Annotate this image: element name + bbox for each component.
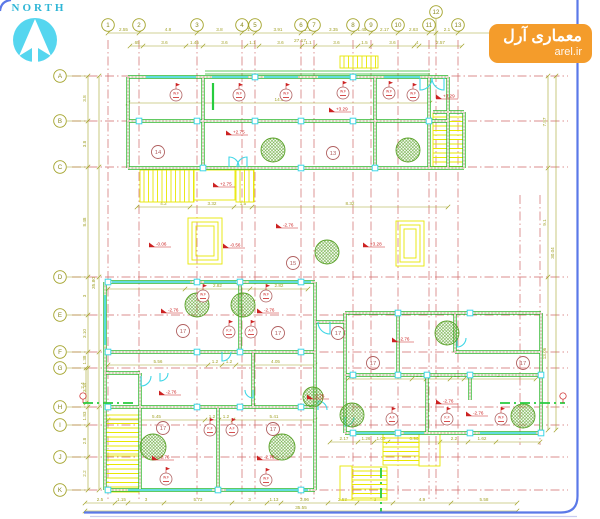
svg-text:7: 7 — [312, 22, 316, 29]
svg-text:2.8: 2.8 — [82, 437, 87, 444]
svg-text:3.96: 3.96 — [300, 497, 309, 502]
svg-text:3: 3 — [248, 497, 251, 502]
svg-text:35.80: 35.80 — [91, 277, 97, 289]
svg-text:1.26: 1.26 — [362, 436, 371, 441]
canopy-lines — [205, 71, 430, 74]
hatch-circle — [435, 321, 459, 345]
svg-text:W.F: W.F — [340, 90, 346, 94]
svg-text:-2.76: -2.76 — [168, 308, 179, 313]
svg-text:1.5: 1.5 — [361, 40, 368, 45]
column-marker — [215, 487, 221, 493]
column-marker — [350, 372, 356, 378]
svg-text:W.F: W.F — [163, 476, 169, 480]
svg-text:5: 5 — [253, 22, 257, 29]
column-marker — [350, 118, 356, 124]
column-marker — [298, 349, 304, 355]
column-marker — [105, 404, 111, 410]
walls — [105, 77, 541, 490]
column-marker — [200, 165, 206, 171]
svg-text:A.F: A.F — [229, 427, 234, 431]
svg-text:15: 15 — [290, 261, 296, 267]
svg-text:4.9: 4.9 — [419, 497, 426, 502]
svg-text:3.35: 3.35 — [329, 27, 338, 32]
svg-text:3.10: 3.10 — [82, 329, 87, 338]
svg-text:A.F: A.F — [248, 329, 253, 333]
svg-text:17: 17 — [335, 331, 341, 337]
svg-text:5.45: 5.45 — [152, 414, 161, 419]
column-marker — [538, 372, 544, 378]
svg-text:17: 17 — [180, 329, 186, 335]
svg-text:4: 4 — [240, 22, 244, 29]
column-marker — [372, 165, 378, 171]
door-swing — [432, 78, 444, 90]
svg-text:+2.75: +2.75 — [233, 130, 245, 135]
svg-text:7.87: 7.87 — [542, 117, 547, 126]
column-marker — [350, 74, 356, 80]
svg-text:17: 17 — [520, 361, 526, 367]
svg-text:E: E — [58, 312, 62, 319]
svg-text:2.63: 2.63 — [409, 27, 418, 32]
svg-text:14: 14 — [155, 150, 162, 156]
svg-text:27.17: 27.17 — [294, 38, 306, 44]
svg-text:.4: .4 — [415, 40, 419, 45]
column-marker — [105, 349, 111, 355]
svg-text:3.6: 3.6 — [161, 40, 168, 45]
column-marker — [467, 310, 473, 316]
svg-text:2.1: 2.1 — [444, 27, 451, 32]
svg-text:-2.76: -2.76 — [473, 411, 484, 416]
svg-text:9.1: 9.1 — [542, 219, 547, 226]
svg-text:H: H — [58, 404, 62, 411]
grid-bubbles: 12345678910111213ABCDEFGHIJK — [54, 6, 465, 497]
svg-text:8.32: 8.32 — [346, 201, 355, 206]
column-marker — [194, 118, 200, 124]
svg-text:3.6: 3.6 — [333, 40, 340, 45]
svg-text:K.F: K.F — [226, 329, 231, 333]
svg-text:1.1: 1.1 — [305, 40, 312, 45]
svg-text:1.13: 1.13 — [270, 497, 279, 502]
column-marker — [298, 404, 304, 410]
svg-text:C: C — [58, 164, 63, 171]
svg-text:3.91: 3.91 — [274, 27, 283, 32]
svg-text:-2.76: -2.76 — [264, 455, 275, 460]
watermark-url: arel.ir — [503, 46, 582, 58]
svg-text:3.6: 3.6 — [389, 40, 396, 45]
svg-text:F: F — [58, 349, 62, 356]
column-marker — [395, 310, 401, 316]
column-marker — [194, 349, 200, 355]
north-label: NORTH — [4, 2, 74, 14]
svg-text:+3.29: +3.29 — [336, 107, 348, 112]
svg-text:K.F: K.F — [444, 416, 449, 420]
column-marker — [136, 118, 142, 124]
svg-text:3.6: 3.6 — [277, 40, 284, 45]
svg-text:W.F: W.F — [283, 92, 289, 96]
column-marker — [424, 372, 430, 378]
svg-text:1.38: 1.38 — [82, 355, 87, 364]
svg-text:5.56: 5.56 — [154, 359, 163, 364]
column-marker — [298, 118, 304, 124]
column-marker — [395, 430, 401, 436]
svg-text:2.17: 2.17 — [340, 436, 349, 441]
svg-text:D: D — [58, 274, 63, 281]
svg-text:1.1: 1.1 — [249, 40, 256, 45]
svg-text:1.45: 1.45 — [190, 40, 199, 45]
column-marker — [237, 349, 243, 355]
svg-text:+3.29: +3.29 — [443, 94, 455, 99]
svg-text:.65: .65 — [133, 40, 140, 45]
door-swing — [141, 376, 151, 386]
svg-text:13: 13 — [455, 22, 462, 29]
hatch-circle — [340, 403, 364, 427]
north-arrow-icon — [9, 14, 69, 66]
svg-text:2.82: 2.82 — [275, 283, 284, 288]
svg-text:B: B — [58, 118, 62, 125]
svg-text:8.48: 8.48 — [82, 217, 87, 226]
hatch-circle — [396, 138, 420, 162]
svg-text:-2.76: -2.76 — [264, 308, 275, 313]
column-marker — [237, 404, 243, 410]
svg-text:1.83: 1.83 — [82, 411, 87, 420]
svg-text:17: 17 — [270, 427, 276, 433]
svg-text:2.2: 2.2 — [451, 436, 458, 441]
floor-plan-canvas: 2.554.83.813.911.13.351.452.172.63.52.1.… — [0, 0, 600, 519]
svg-text:35.55: 35.55 — [295, 505, 307, 510]
svg-text:2.82: 2.82 — [213, 283, 222, 288]
svg-text:W.F: W.F — [410, 92, 416, 96]
svg-text:W.F: W.F — [263, 293, 269, 297]
svg-text:G: G — [58, 365, 63, 372]
svg-text:4.05: 4.05 — [271, 359, 280, 364]
svg-text:+2.75: +2.75 — [220, 182, 232, 187]
svg-text:K.F: K.F — [207, 427, 212, 431]
column-marker — [105, 487, 111, 493]
svg-text:17: 17 — [275, 331, 281, 337]
svg-text:5.73: 5.73 — [194, 497, 203, 502]
hatch-circle — [231, 293, 255, 317]
svg-text:-2.76: -2.76 — [399, 337, 410, 342]
column-marker — [298, 487, 304, 493]
svg-text:1.2: 1.2 — [223, 414, 230, 419]
svg-text:4.8: 4.8 — [165, 27, 172, 32]
svg-text:11: 11 — [426, 22, 433, 29]
svg-text:W.F: W.F — [236, 92, 242, 96]
svg-text:2.17: 2.17 — [380, 27, 389, 32]
svg-text:-2.76: -2.76 — [159, 455, 170, 460]
svg-text:2: 2 — [137, 22, 141, 29]
svg-text:10: 10 — [395, 22, 402, 29]
svg-text:5.41: 5.41 — [270, 414, 279, 419]
svg-text:W.F: W.F — [263, 477, 269, 481]
svg-text:2.4: 2.4 — [80, 382, 85, 389]
svg-text:12: 12 — [433, 9, 440, 16]
column-marker — [237, 279, 243, 285]
svg-text:2.2: 2.2 — [82, 470, 87, 477]
column-marker — [298, 279, 304, 285]
hatch-circle — [511, 404, 535, 428]
svg-text:J: J — [58, 454, 61, 461]
column-marker — [538, 430, 544, 436]
svg-text:30.04: 30.04 — [550, 247, 555, 259]
svg-text:W.F: W.F — [498, 416, 504, 420]
hatch-circle — [315, 240, 339, 264]
hatch-circle — [261, 138, 285, 162]
svg-text:1.62: 1.62 — [478, 436, 487, 441]
north-compass: NORTH — [4, 2, 74, 71]
room-labels: 14131517171717171717 — [152, 146, 530, 436]
svg-text:3: 3 — [145, 497, 148, 502]
door-swing — [318, 322, 330, 334]
svg-text:3: 3 — [82, 294, 87, 297]
svg-text:3.32: 3.32 — [208, 201, 217, 206]
column-marker — [350, 430, 356, 436]
svg-text:-2.76: -2.76 — [283, 223, 294, 228]
column-marker — [105, 279, 111, 285]
svg-text:17: 17 — [160, 426, 166, 432]
svg-text:8: 8 — [351, 22, 355, 29]
svg-text:3.8: 3.8 — [216, 27, 223, 32]
svg-text:9: 9 — [369, 22, 373, 29]
svg-text:-2.76: -2.76 — [443, 399, 454, 404]
floorplan-page: 2.554.83.813.911.13.351.452.172.63.52.1.… — [0, 0, 600, 519]
svg-text:I: I — [59, 422, 61, 429]
watermark-brand: معماری آرل — [503, 28, 582, 46]
column-marker — [426, 118, 432, 124]
svg-text:A.F: A.F — [389, 416, 394, 420]
svg-text:+3.28: +3.28 — [370, 242, 382, 247]
svg-text:1.15: 1.15 — [117, 497, 126, 502]
svg-text:13: 13 — [330, 151, 336, 157]
svg-text:5.58: 5.58 — [480, 497, 489, 502]
column-marker — [252, 118, 258, 124]
svg-text:3.8: 3.8 — [82, 95, 87, 102]
column-marker — [194, 404, 200, 410]
svg-text:1: 1 — [106, 22, 110, 29]
watermark-badge: معماری آرل arel.ir — [489, 24, 592, 63]
svg-text:3.8: 3.8 — [82, 140, 87, 147]
svg-text:17: 17 — [370, 361, 376, 367]
svg-text:0.96: 0.96 — [410, 436, 419, 441]
svg-text:-0.06: -0.06 — [156, 242, 167, 247]
svg-text:W.F: W.F — [200, 293, 206, 297]
svg-text:1.2: 1.2 — [212, 359, 219, 364]
svg-text:2.5: 2.5 — [97, 497, 104, 502]
column-marker — [252, 74, 258, 80]
svg-text:3.6: 3.6 — [221, 40, 228, 45]
svg-text:13.06: 13.06 — [542, 347, 547, 359]
door-swing — [160, 373, 168, 381]
column-marker — [194, 279, 200, 285]
column-marker — [467, 430, 473, 436]
svg-text:-2.76: -2.76 — [166, 390, 177, 395]
svg-text:1.06: 1.06 — [377, 436, 386, 441]
svg-text:6: 6 — [299, 22, 303, 29]
column-marker — [395, 372, 401, 378]
svg-text:W.F: W.F — [386, 90, 392, 94]
column-marker — [298, 165, 304, 171]
svg-text:W.F: W.F — [173, 92, 179, 96]
svg-text:2.55: 2.55 — [119, 27, 128, 32]
svg-text:2.57: 2.57 — [436, 40, 445, 45]
svg-text:-2.76: -2.76 — [314, 394, 325, 399]
svg-text:-0.56: -0.56 — [230, 243, 241, 248]
column-marker — [467, 372, 473, 378]
svg-text:3: 3 — [195, 22, 199, 29]
